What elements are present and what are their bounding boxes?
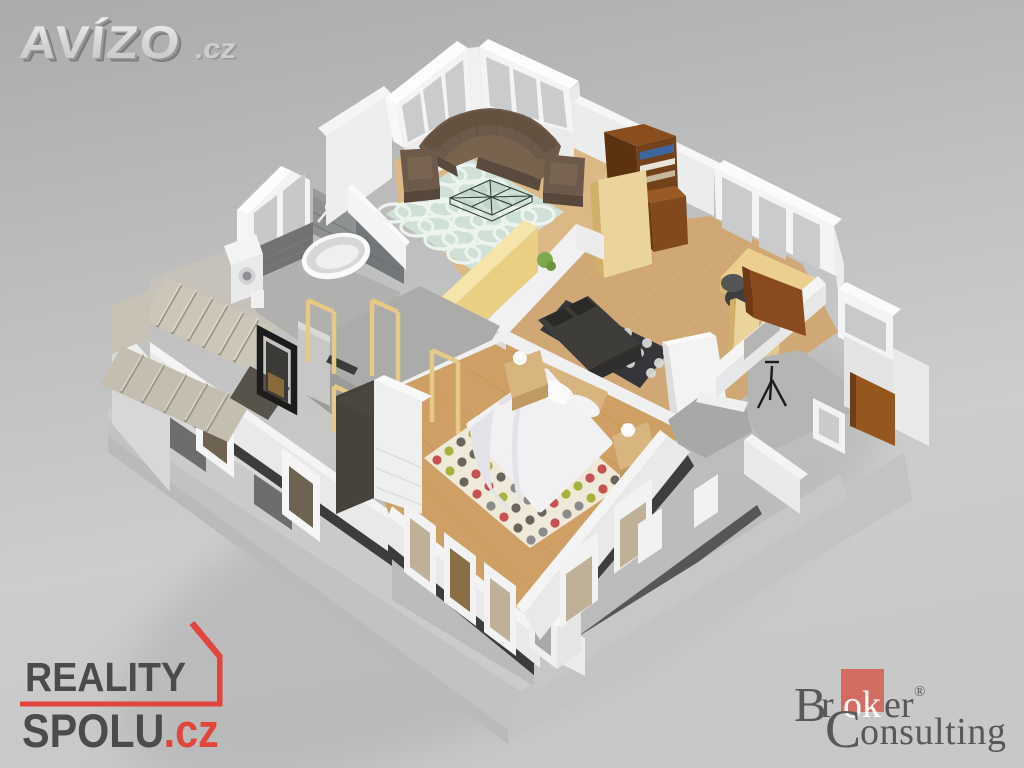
svg-text:AVÍZO: AVÍZO — [17, 17, 184, 68]
svg-text:REALITY: REALITY — [25, 656, 186, 701]
svg-text:SPOLU: SPOLU — [22, 706, 164, 758]
svg-text:.cz: .cz — [193, 33, 237, 64]
svg-text:®: ® — [914, 684, 925, 700]
svg-text:.cz: .cz — [164, 706, 219, 758]
svg-text:onsulting: onsulting — [860, 711, 1006, 753]
svg-text:C: C — [825, 699, 861, 759]
